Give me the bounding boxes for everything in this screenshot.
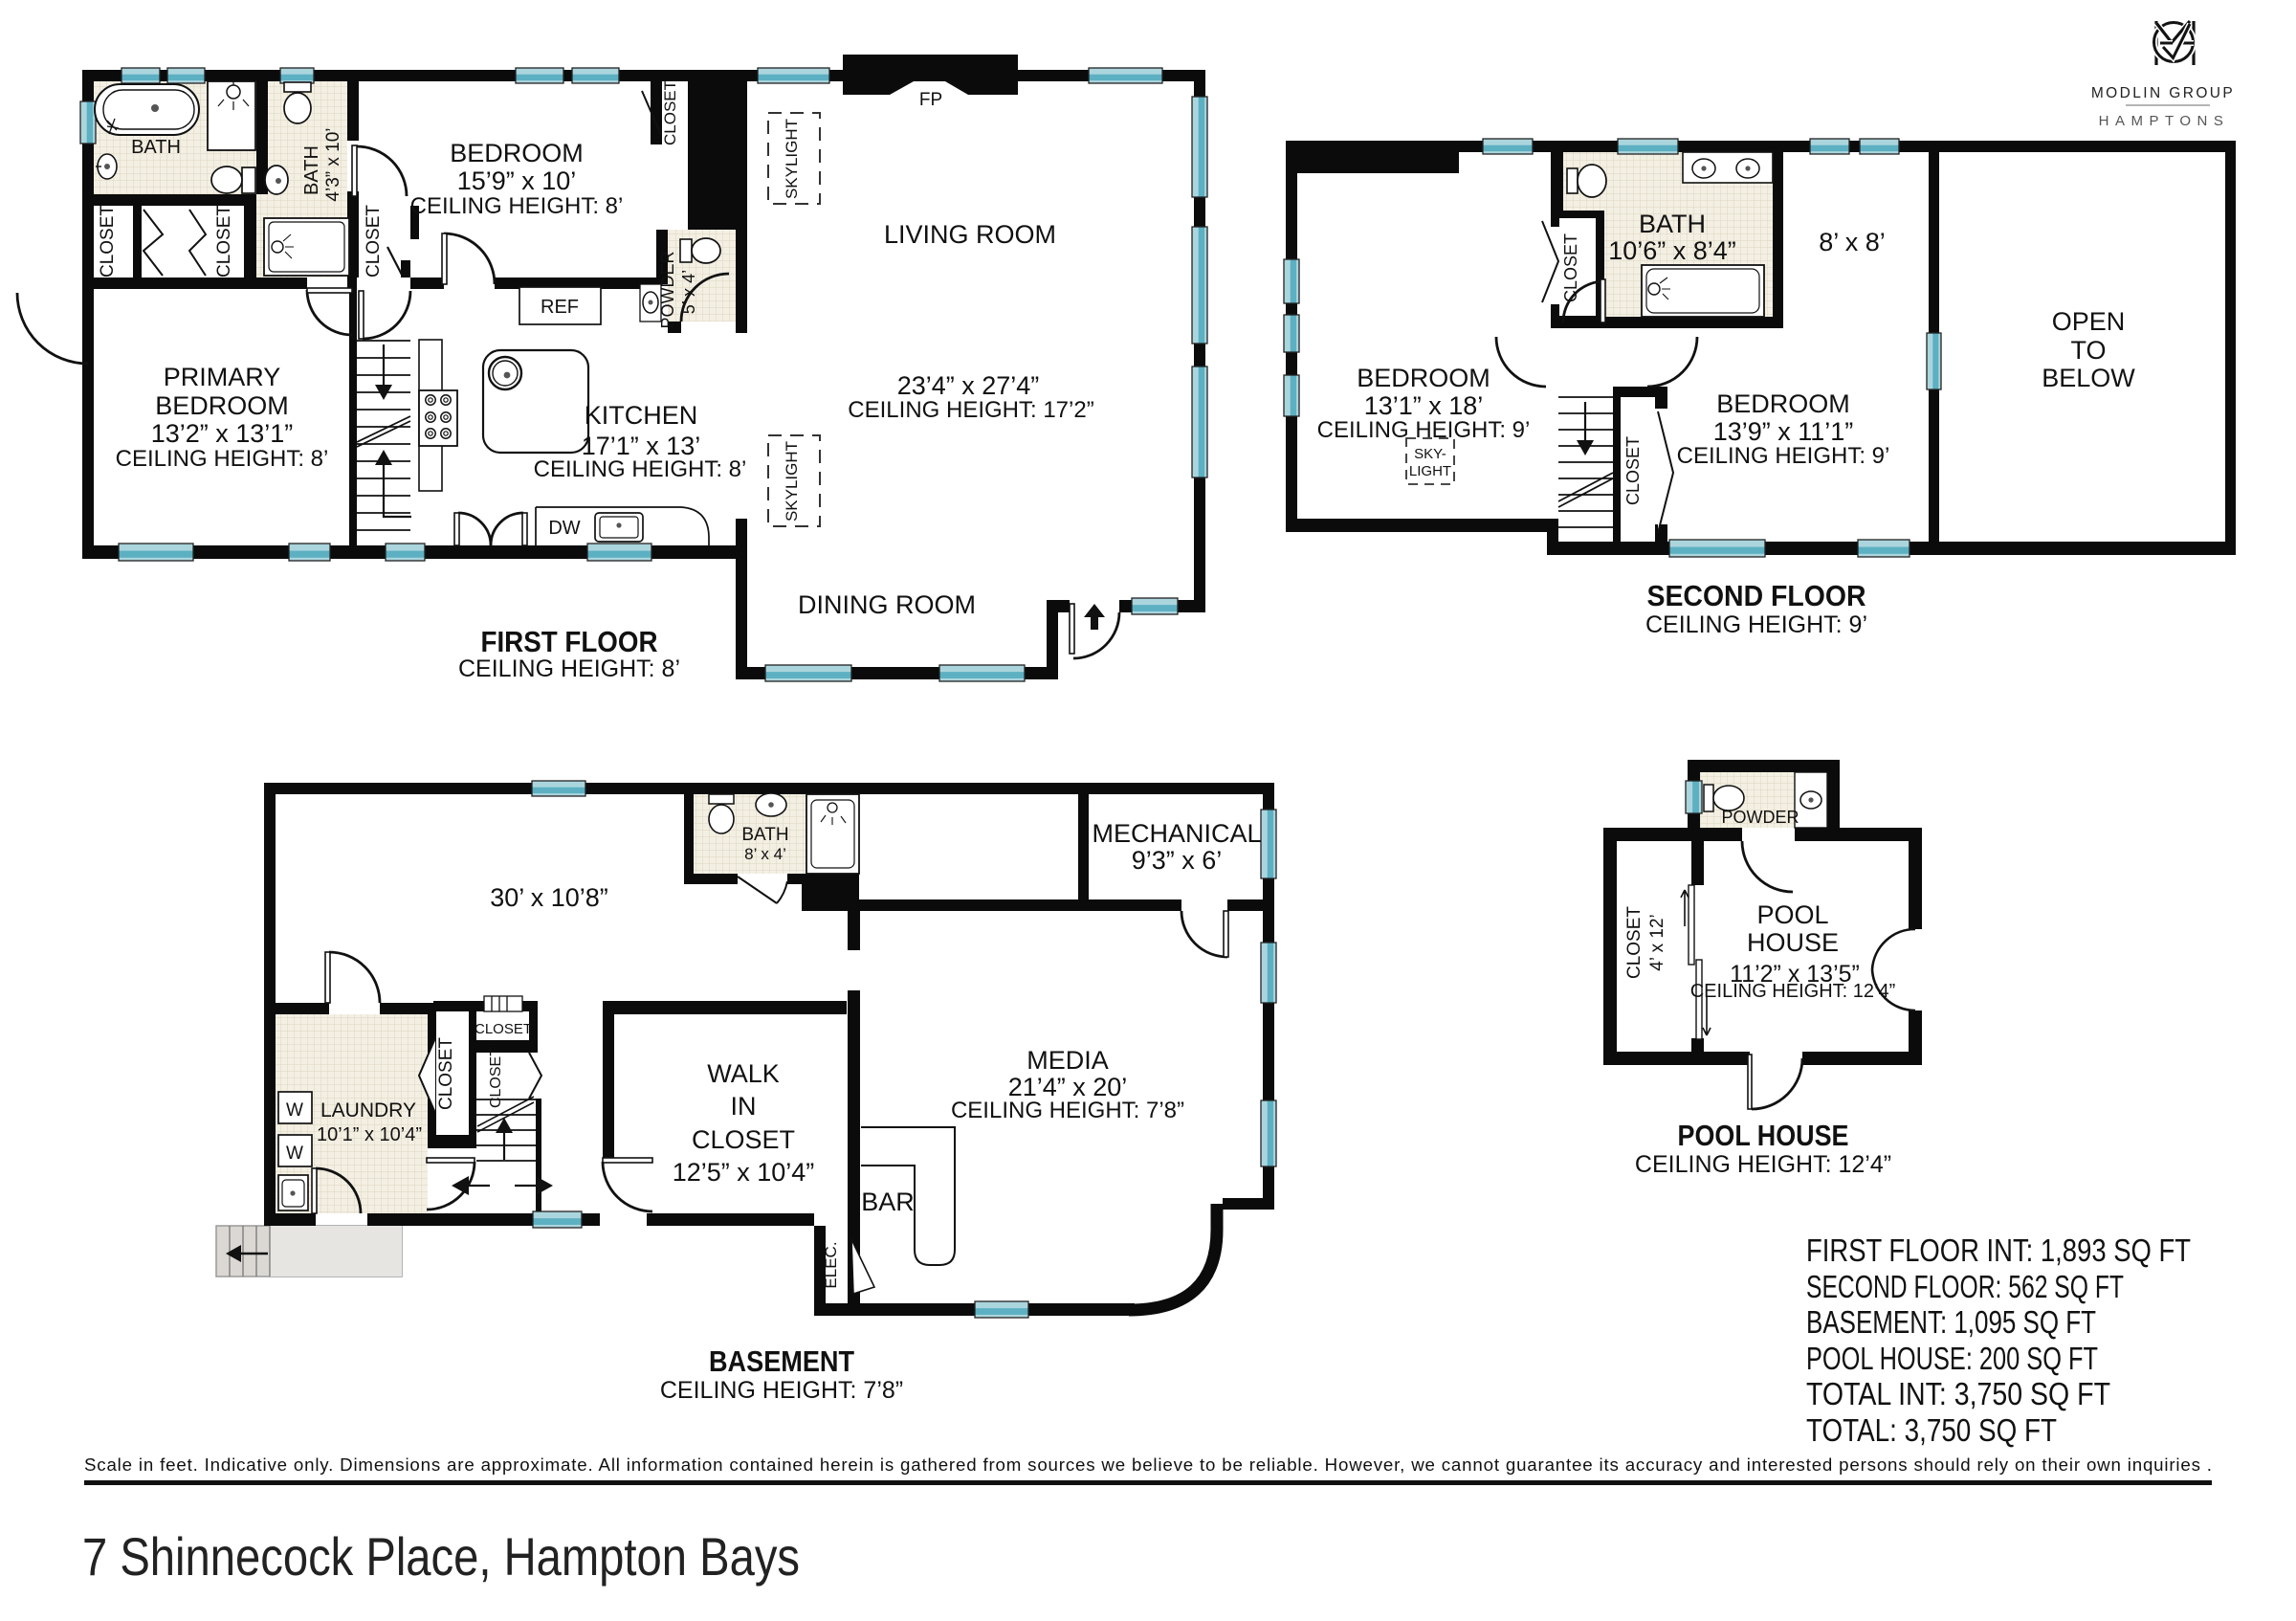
svg-text:CLOSET: CLOSET (436, 1037, 456, 1110)
svg-text:CEILING HEIGHT: 8’: CEILING HEIGHT: 8’ (116, 446, 329, 472)
svg-text:8’ x 4’: 8’ x 4’ (744, 845, 786, 863)
svg-text:CLOSET: CLOSET (98, 205, 118, 278)
svg-text:5’ x 4’: 5’ x 4’ (679, 270, 698, 314)
svg-text:15’9” x 10’: 15’9” x 10’ (457, 167, 577, 195)
svg-text:7 Shinnecock Place, Hampton Ba: 7 Shinnecock Place, Hampton Bays (82, 1526, 800, 1587)
svg-text:REF: REF (541, 297, 579, 318)
svg-text:DINING ROOM: DINING ROOM (798, 590, 976, 619)
svg-text:SECOND FLOOR: 562 SQ FT: SECOND FLOOR: 562 SQ FT (1806, 1269, 2124, 1304)
svg-text:MECHANICAL: MECHANICAL (1092, 819, 1261, 848)
svg-text:CEILING HEIGHT: 9’: CEILING HEIGHT: 9’ (1677, 443, 1890, 469)
svg-text:CEILING HEIGHT: 17’2”: CEILING HEIGHT: 17’2” (848, 397, 1093, 423)
svg-text:CEILING HEIGHT: 7’8”: CEILING HEIGHT: 7’8” (951, 1098, 1184, 1123)
svg-text:10’6” x 8’4”: 10’6” x 8’4” (1608, 236, 1736, 265)
svg-text:LIGHT: LIGHT (1409, 463, 1451, 479)
svg-text:ELEC.: ELEC. (822, 1241, 840, 1288)
svg-text:CLOSET: CLOSET (364, 205, 384, 278)
svg-text:30’ x 10’8”: 30’ x 10’8” (490, 883, 608, 912)
svg-text:BASEMENT: BASEMENT (709, 1344, 854, 1378)
svg-text:CEILING HEIGHT: 9’: CEILING HEIGHT: 9’ (1645, 611, 1867, 638)
svg-text:CEILING HEIGHT: 8’: CEILING HEIGHT: 8’ (458, 655, 680, 682)
svg-text:CEILING HEIGHT: 12’4”: CEILING HEIGHT: 12’4” (1690, 981, 1896, 1002)
svg-text:WALK: WALK (707, 1059, 780, 1088)
svg-text:TO: TO (2070, 336, 2106, 365)
svg-text:CLOSET: CLOSET (475, 1021, 532, 1037)
svg-text:FIRST FLOOR: FIRST FLOOR (481, 625, 658, 658)
svg-text:SKYLIGHT: SKYLIGHT (783, 441, 801, 522)
svg-text:13’1” x 18’: 13’1” x 18’ (1364, 391, 1484, 420)
svg-text:13’2” x 13’1”: 13’2” x 13’1” (151, 419, 294, 448)
svg-text:CEILING HEIGHT: 7’8”: CEILING HEIGHT: 7’8” (660, 1377, 903, 1404)
svg-text:CLOSET: CLOSET (661, 80, 679, 145)
svg-text:BASEMENT: 1,095 SQ FT: BASEMENT: 1,095 SQ FT (1806, 1304, 2096, 1340)
svg-text:POWDER: POWDER (1722, 808, 1799, 827)
svg-text:LIVING ROOM: LIVING ROOM (884, 220, 1056, 249)
svg-text:POOL: POOL (1756, 900, 1828, 929)
svg-text:KITCHEN: KITCHEN (585, 401, 698, 430)
svg-text:10’1” x 10’4”: 10’1” x 10’4” (317, 1124, 422, 1145)
svg-text:TOTAL INT: 3,750 SQ FT: TOTAL INT: 3,750 SQ FT (1806, 1376, 2110, 1411)
svg-text:12’5” x 10’4”: 12’5” x 10’4” (673, 1158, 815, 1187)
svg-text:9’3” x 6’: 9’3” x 6’ (1132, 846, 1223, 875)
svg-text:BEDROOM: BEDROOM (1716, 389, 1850, 418)
svg-text:MODLIN GROUP: MODLIN GROUP (2091, 85, 2235, 101)
svg-text:DW: DW (548, 518, 580, 539)
svg-text:BAR: BAR (861, 1188, 915, 1216)
svg-text:FIRST FLOOR INT: 1,893 SQ FT: FIRST FLOOR INT: 1,893 SQ FT (1806, 1232, 2191, 1268)
svg-text:POWDER: POWDER (658, 251, 677, 328)
svg-text:IN: IN (731, 1092, 757, 1121)
svg-text:TOTAL: 3,750 SQ FT: TOTAL: 3,750 SQ FT (1806, 1412, 2057, 1448)
svg-text:CLOSET: CLOSET (214, 205, 234, 278)
svg-text:4’3” x 10’: 4’3” x 10’ (323, 127, 343, 201)
svg-text:BATH: BATH (741, 825, 788, 845)
svg-text:MEDIA: MEDIA (1027, 1046, 1109, 1075)
svg-text:BATH: BATH (131, 137, 181, 158)
svg-text:CLOSET: CLOSET (692, 1125, 795, 1154)
svg-text:SKYLIGHT: SKYLIGHT (783, 119, 801, 199)
svg-text:W: W (286, 1144, 303, 1164)
svg-text:SKY-: SKY- (1414, 446, 1446, 462)
svg-text:23’4” x 27’4”: 23’4” x 27’4” (897, 371, 1040, 400)
svg-text:FP: FP (919, 90, 942, 110)
svg-text:W: W (286, 1100, 303, 1121)
svg-text:PRIMARY: PRIMARY (164, 363, 281, 391)
svg-text:CEILING HEIGHT: 9’: CEILING HEIGHT: 9’ (1317, 417, 1531, 443)
svg-text:POOL HOUSE: 200 SQ FT: POOL HOUSE: 200 SQ FT (1806, 1341, 2098, 1376)
svg-text:POOL HOUSE: POOL HOUSE (1678, 1119, 1849, 1152)
svg-text:CEILING HEIGHT: 8’: CEILING HEIGHT: 8’ (410, 193, 624, 219)
svg-text:CLOSET: CLOSET (1623, 436, 1643, 505)
svg-text:HAMPTONS: HAMPTONS (2099, 113, 2230, 129)
svg-text:HOUSE: HOUSE (1747, 928, 1839, 957)
svg-text:CEILING HEIGHT: 8’: CEILING HEIGHT: 8’ (534, 456, 747, 482)
svg-text:Scale in feet. Indicative only: Scale in feet. Indicative only. Dimensio… (84, 1454, 2212, 1475)
svg-text:4’ x 12’: 4’ x 12’ (1647, 914, 1667, 971)
svg-text:BELOW: BELOW (2042, 364, 2135, 392)
svg-text:8’ x 8’: 8’ x 8’ (1819, 228, 1886, 256)
svg-text:OPEN: OPEN (2052, 307, 2126, 336)
svg-text:13’9” x 11’1”: 13’9” x 11’1” (1713, 417, 1854, 446)
svg-text:CEILING HEIGHT: 12’4”: CEILING HEIGHT: 12’4” (1635, 1151, 1891, 1178)
svg-text:LAUNDRY: LAUNDRY (320, 1099, 416, 1121)
svg-text:BEDROOM: BEDROOM (1357, 364, 1490, 392)
svg-text:CLOSET: CLOSET (1624, 906, 1645, 979)
svg-text:SECOND FLOOR: SECOND FLOOR (1647, 579, 1866, 612)
svg-text:BEDROOM: BEDROOM (155, 391, 289, 420)
svg-text:BATH: BATH (1639, 210, 1706, 238)
svg-text:BATH: BATH (301, 145, 322, 195)
svg-text:BEDROOM: BEDROOM (450, 139, 584, 167)
